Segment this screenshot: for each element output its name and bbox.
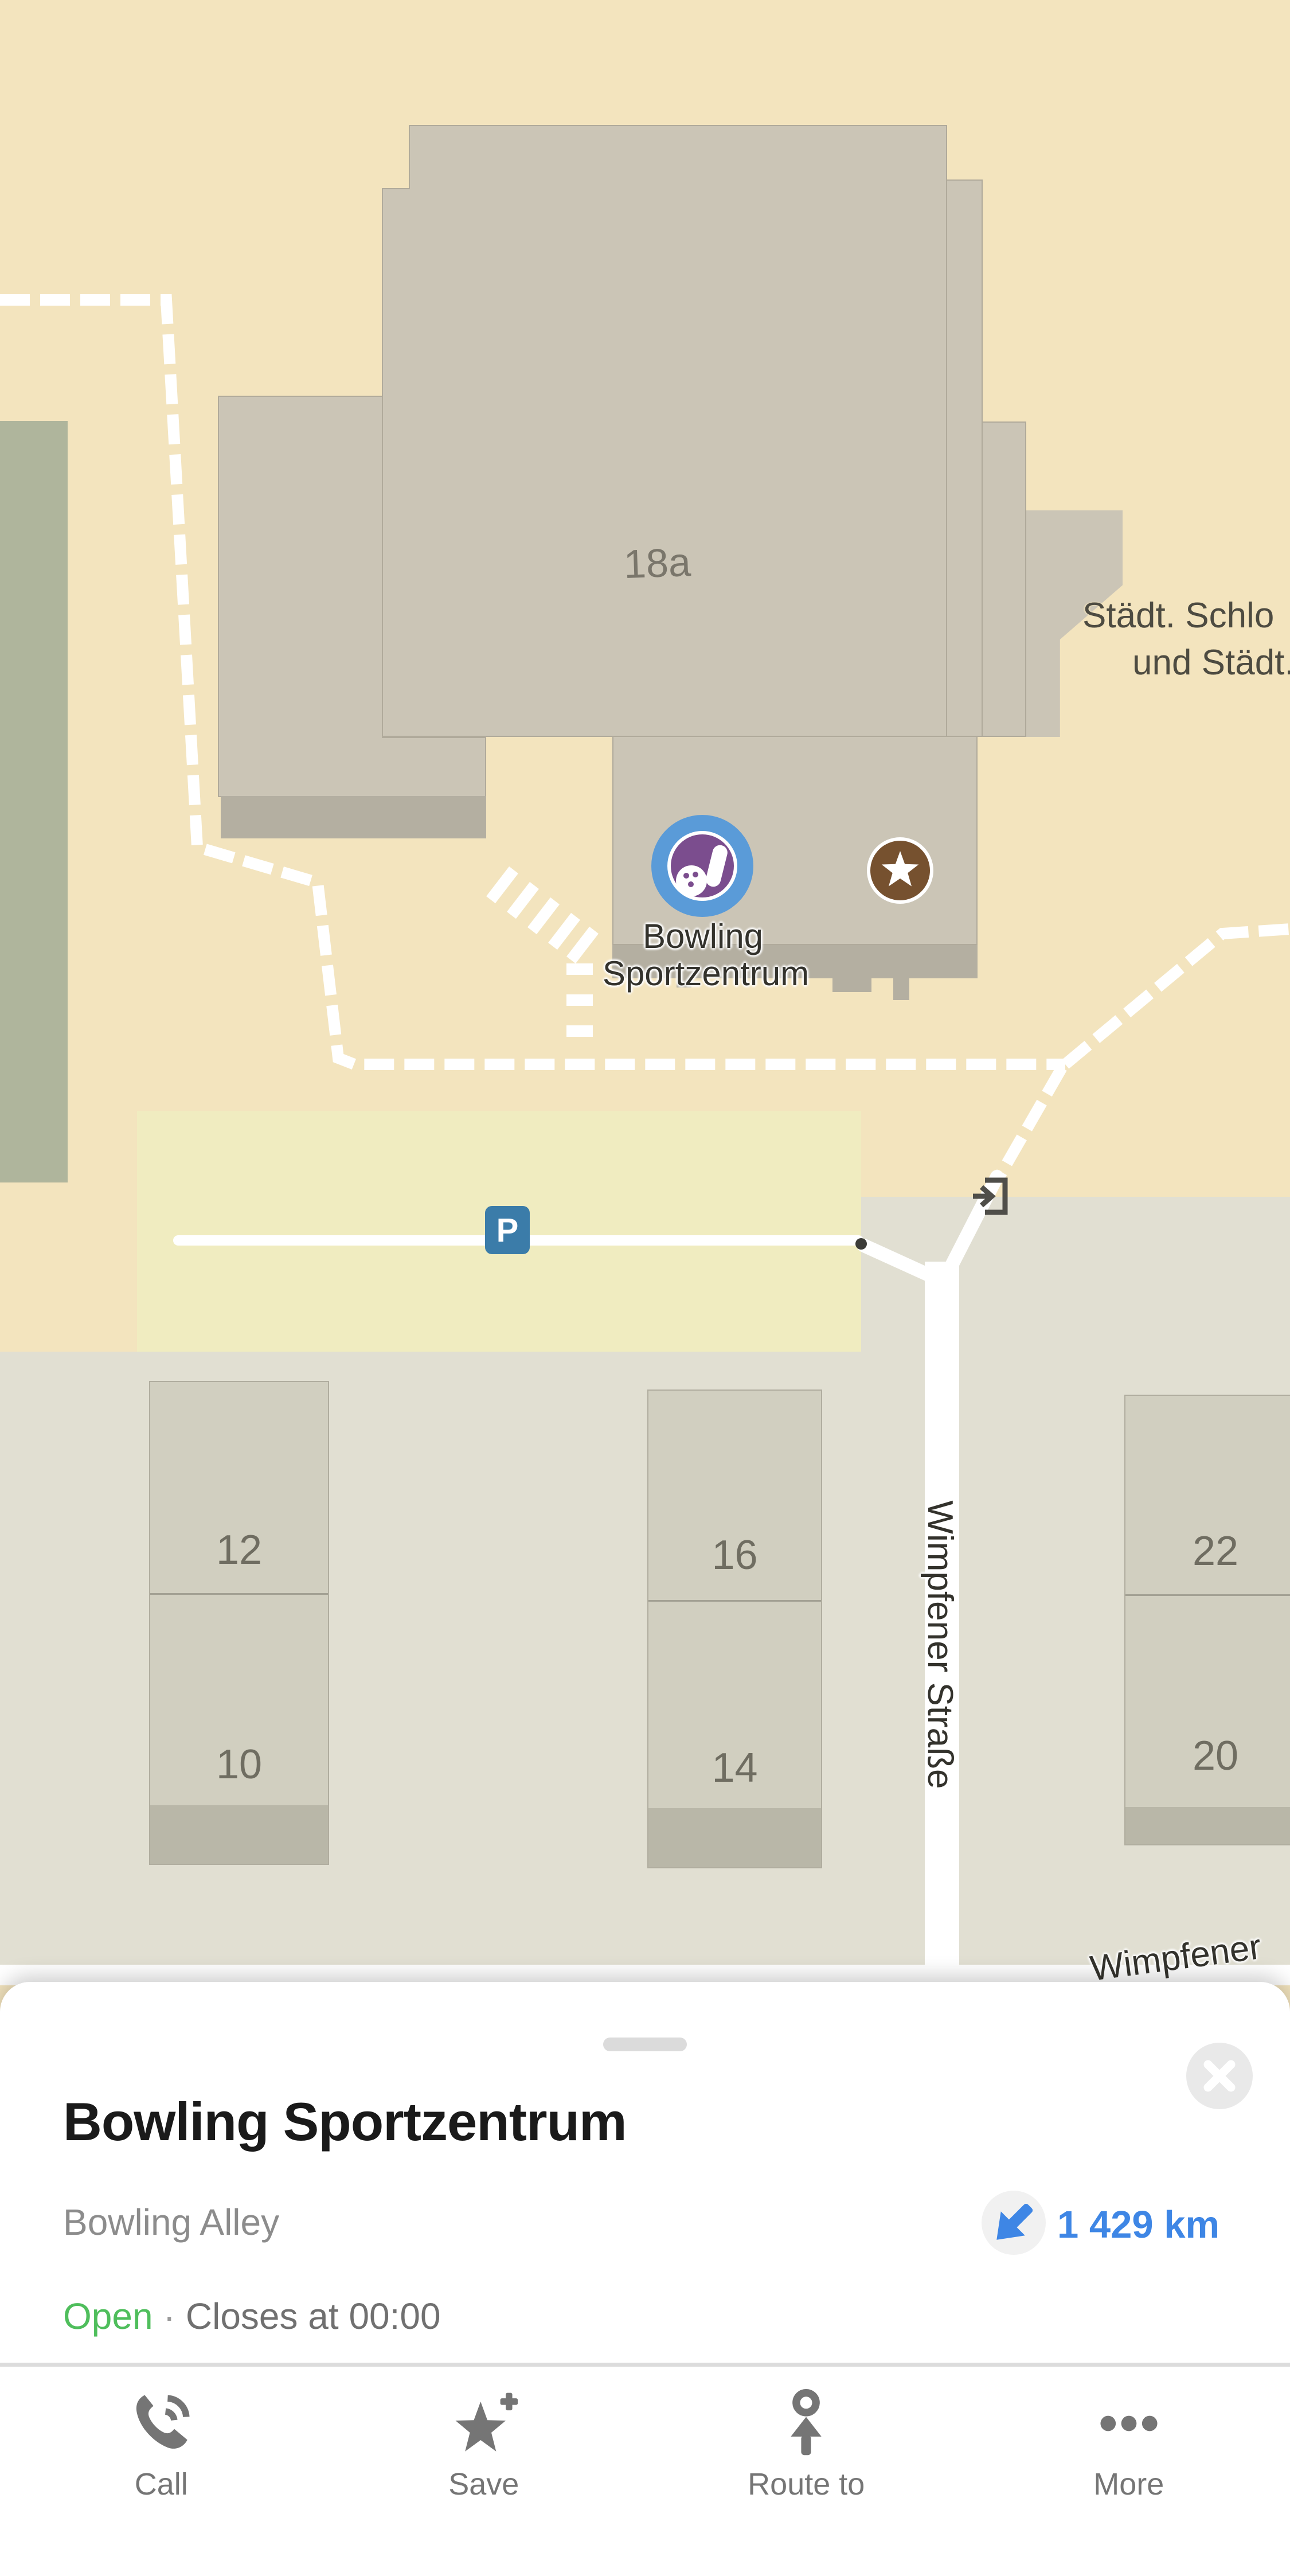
action-label: More xyxy=(1093,2466,1164,2502)
clipped-place-label-line2: und Städt. xyxy=(1132,642,1290,683)
call-button[interactable]: Call xyxy=(0,2367,323,2576)
place-title: Bowling Sportzentrum xyxy=(63,2091,627,2153)
distance-value: 1 429 km xyxy=(1057,2203,1219,2247)
place-category: Bowling Alley xyxy=(63,2201,279,2243)
action-label: Route to xyxy=(748,2466,865,2502)
road-end-dot xyxy=(855,1238,867,1250)
phone-icon xyxy=(126,2388,196,2458)
opening-status: Open·Closes at 00:00 xyxy=(63,2295,441,2337)
action-label: Save xyxy=(448,2466,519,2502)
more-ellipsis-icon xyxy=(1094,2388,1164,2458)
street-name-label: Wimpfener Straße xyxy=(917,1444,963,1845)
divider xyxy=(0,2363,1290,2367)
more-button[interactable]: More xyxy=(968,2367,1290,2576)
status-closes: Closes at 00:00 xyxy=(186,2296,441,2337)
poi-name-label-line2: Sportzentrum xyxy=(534,954,878,993)
poi-name-label-line1: Bowling xyxy=(588,916,818,956)
bowling-poi-marker[interactable] xyxy=(651,815,753,917)
parking-letter: P xyxy=(497,1211,519,1250)
direction-arrow-icon xyxy=(982,2191,1046,2255)
status-open: Open xyxy=(63,2296,153,2337)
sheet-drag-handle[interactable] xyxy=(603,2038,687,2051)
save-button[interactable]: Save xyxy=(323,2367,646,2576)
roads xyxy=(0,1177,1290,1990)
map-screen: 12 10 16 14 22 20 xyxy=(0,0,1290,2576)
footpath-dashed xyxy=(0,300,1290,1176)
status-separator: · xyxy=(153,2296,186,2337)
saved-place-star-marker[interactable] xyxy=(867,837,933,904)
action-label: Call xyxy=(135,2466,188,2502)
parking-badge[interactable]: P xyxy=(485,1206,530,1254)
stairs-icon xyxy=(491,870,594,1031)
clipped-place-label-line1: Städt. Schlo xyxy=(1082,595,1274,636)
direction-indicator xyxy=(982,2191,1046,2255)
close-button[interactable] xyxy=(1186,2043,1253,2109)
building-number-label: 18a xyxy=(623,539,692,587)
place-detail-sheet: Bowling Sportzentrum Bowling Alley 1 429… xyxy=(0,1982,1290,2576)
star-plus-icon xyxy=(449,2388,519,2458)
route-to-button[interactable]: Route to xyxy=(645,2367,968,2576)
action-bar: Call Save Route to xyxy=(0,2367,1290,2576)
close-icon xyxy=(1186,2043,1253,2109)
route-icon xyxy=(771,2388,841,2458)
